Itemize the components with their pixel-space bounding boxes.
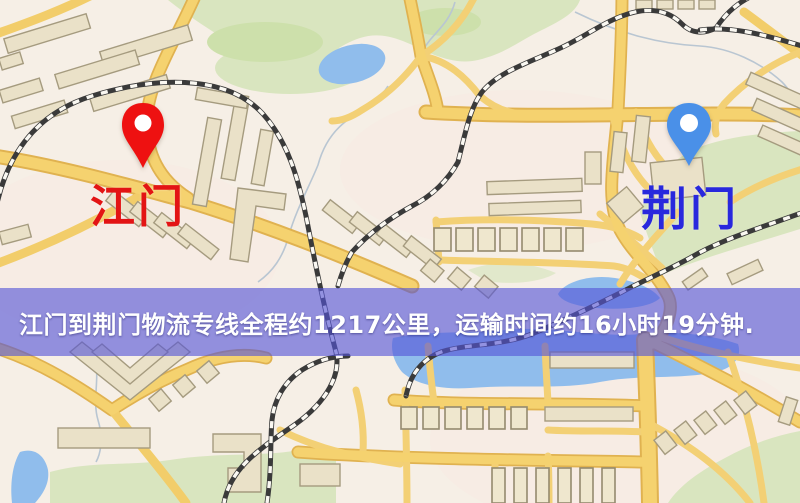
route-info-banner: 江门到荆门物流专线全程约1217公里，运输时间约16小时19分钟. (0, 288, 800, 356)
route-info-text: 江门到荆门物流专线全程约1217公里，运输时间约16小时19分钟. (19, 305, 754, 340)
origin-label: 江门 (90, 170, 186, 235)
origin-pin-icon[interactable] (120, 101, 166, 171)
destination-label: 荆门 (641, 173, 739, 239)
map-canvas (0, 0, 800, 503)
map-view: 江门 荆门 江门到荆门物流专线全程约1217公里，运输时间约16小时19分钟. (0, 0, 800, 503)
destination-pin-icon[interactable] (665, 101, 713, 169)
